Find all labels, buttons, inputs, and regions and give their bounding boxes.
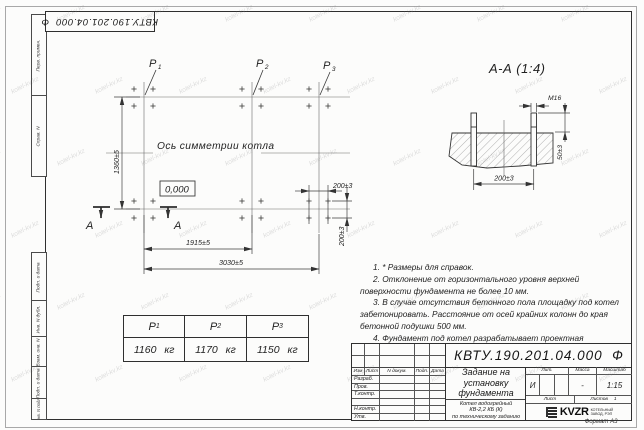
scale-value: 1:15 — [597, 375, 632, 396]
col-header-list: Лист — [365, 368, 380, 376]
sheet-row: Лист Листов1 — [526, 396, 632, 404]
lit-label: Лит. — [526, 367, 569, 375]
col-header-izm: Изм — [352, 368, 365, 376]
col-header-data: Дата — [430, 368, 445, 376]
sign-row-razrab: Разраб. — [352, 376, 380, 384]
lit-mass-scale-values: И - 1:15 — [526, 375, 632, 396]
load-point-leaders — [145, 70, 330, 95]
lit-value: И — [526, 375, 540, 396]
plan-anchor-bolt-crosses — [131, 86, 330, 220]
sign-row-tkontr: Т.контр. — [352, 391, 380, 399]
dim-bolt-pitch-h: 200±3 — [332, 183, 353, 190]
dim-protrusion-50: 50±3 — [557, 145, 564, 160]
title-block-subtitle: Котел водогрейный КВ-2,2 КБ (К) по техни… — [445, 399, 526, 421]
sheets-cell: Листов1 — [575, 396, 632, 404]
load-point-label-p2: P2 — [256, 58, 269, 71]
sheets-value: 1 — [614, 397, 617, 402]
sign-row-nkontr: Н.контр. — [352, 406, 380, 414]
note-3: 3. В случае отсутствия бетонного пола пл… — [360, 297, 632, 332]
title-block-right-section: Лит. Масса Масштаб И - 1:15 Лист Листов1… — [525, 367, 632, 420]
title-block: КВТУ.190.201.04.000 Ф Изм Лист N докум. … — [351, 343, 632, 421]
dim-bolt-pitch-v: 200±3 — [339, 226, 346, 247]
col-header-dokum: N докум. — [380, 368, 415, 376]
title-block-change-grid — [352, 344, 445, 367]
col-header-podp: Подп. — [415, 368, 430, 376]
dim-pitch-200-section: 200±3 — [493, 176, 514, 183]
section-letter-left: А — [85, 220, 93, 232]
load-point-label-p1: P1 — [149, 58, 162, 71]
load-table-header-p2: P2 — [185, 316, 246, 338]
sign-row-utv: Утв. — [352, 414, 380, 422]
company-abbr: KVZR — [560, 406, 589, 418]
section-title: А-А (1:4) — [488, 61, 546, 76]
coil-icon — [545, 406, 558, 418]
foundation-concrete-section — [449, 133, 553, 168]
load-table-value-p3: 1150 кг — [247, 338, 308, 361]
load-table-value-p2: 1170 кг — [185, 338, 246, 361]
elevation-mark-value: 0,000 — [165, 185, 189, 196]
mass-value: - — [569, 375, 597, 396]
mass-label: Масса — [569, 367, 597, 375]
load-table-header-p3: P3 — [247, 316, 308, 338]
dim-span-1915: 1915±5 — [186, 238, 211, 247]
section-letter-right: А — [173, 220, 181, 232]
sign-row-empty — [352, 399, 380, 407]
load-table: P1 P2 P3 1160 кг 1170 кг 1150 кг — [123, 315, 309, 362]
plan-axis-lines — [106, 82, 350, 233]
note-1: 1. * Размеры для справок. — [360, 262, 632, 274]
dim-total-3030: 3030±5 — [219, 258, 244, 267]
plan-dimension-lines — [114, 97, 352, 274]
sign-row-prov: Пров. — [352, 384, 380, 392]
company-name: КОТЕЛЬНЫЙ ЗАВОД, РЭП — [591, 408, 614, 416]
lit-mass-scale-header: Лит. Масса Масштаб — [526, 367, 632, 375]
load-table-header-p1: P1 — [124, 316, 185, 338]
title-block-doc-number: КВТУ.190.201.04.000 Ф — [445, 344, 632, 368]
dim-height-1360: 1360±5 — [112, 149, 121, 174]
note-2: 2. Отклонение от горизонтального уровня … — [360, 274, 632, 298]
title-block-document-title: Задание на установку фундамента — [445, 367, 526, 399]
load-table-value-p1: 1160 кг — [124, 338, 185, 361]
sheet-label: Лист — [526, 396, 575, 404]
scale-label: Масштаб — [597, 367, 632, 375]
company-logo: KVZR КОТЕЛЬНЫЙ ЗАВОД, РЭП — [526, 404, 632, 420]
load-point-label-p3: P3 — [323, 60, 336, 73]
boiler-symmetry-axis-label: Ось симметрии котла — [157, 141, 274, 152]
dim-thread-m16: М16 — [548, 95, 561, 102]
format-label: Формат А3 — [566, 419, 636, 425]
title-block-signature-grid: Изм Лист N докум. Подп. Дата Разраб. Про… — [352, 367, 445, 421]
